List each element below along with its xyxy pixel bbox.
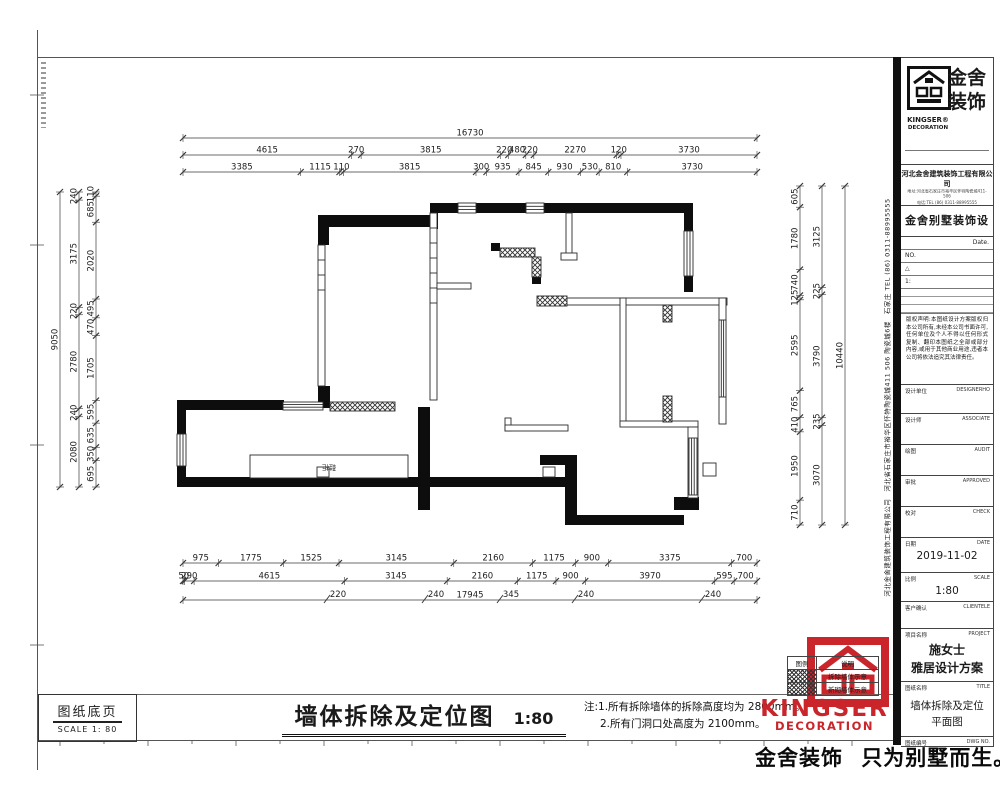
row-label-cn: 绘图 bbox=[905, 447, 916, 455]
dim-label: 3145 bbox=[385, 572, 407, 582]
row-audit: 绘图 AUDIT bbox=[901, 445, 993, 476]
dim-label: 930 bbox=[556, 163, 572, 173]
dim-label: 3730 bbox=[681, 163, 703, 173]
dim-label: 700 bbox=[737, 572, 753, 582]
row-label-cn: 设计师 bbox=[905, 416, 922, 424]
row-label-en: ASSOCIATE bbox=[962, 416, 990, 422]
dim-label: 595 bbox=[716, 572, 732, 582]
brand-cn-line2: 装饰 bbox=[945, 90, 989, 114]
kingser-red-wordmark: KINGSER DECORATION bbox=[756, 698, 893, 733]
dim-label: 220 bbox=[522, 146, 538, 156]
dim-label: 1175 bbox=[543, 554, 565, 564]
corner-title-box: 图纸底页 SCALE 1: 80 bbox=[38, 694, 137, 742]
dim-label: 3970 bbox=[639, 572, 661, 582]
brand-logo-section: 金舍 装饰 KINGSER® DECORATION bbox=[901, 58, 993, 165]
dim-label: 3145 bbox=[386, 554, 408, 564]
legend-symbol-new bbox=[788, 683, 817, 696]
dim-label: 2160 bbox=[482, 554, 504, 564]
corner-title: 图纸底页 bbox=[53, 701, 121, 723]
dim-label: 240 bbox=[70, 188, 80, 204]
dim-label: 1950 bbox=[791, 455, 801, 477]
row-dwgno: 图纸编号 DWG NO. bbox=[901, 737, 993, 761]
row-associate: 设计师 ASSOCIATE bbox=[901, 414, 993, 445]
company-section: 河北金舍建筑装饰工程有限公司 地址:河北省石家庄市裕华区怀特陶瓷城411-506… bbox=[901, 165, 993, 206]
dim-label: 4615 bbox=[256, 146, 278, 156]
legend-symbol-demolish bbox=[788, 670, 817, 683]
dim-label: 225 bbox=[813, 283, 823, 299]
dim-label: 9050 bbox=[51, 329, 61, 351]
dim-label: 120 bbox=[611, 146, 627, 156]
company-name: 河北金舍建筑装饰工程有限公司 bbox=[901, 169, 993, 189]
product-line: 金舍别墅装饰设计 bbox=[901, 206, 993, 237]
titleblock-vertical-address: 河北金舍建筑装饰工程有限公司 河北省石家庄市裕华区怀特陶瓷城411 506 陶瓷… bbox=[882, 58, 893, 738]
dim-label: 700 bbox=[736, 554, 752, 564]
dim-label: 495 bbox=[87, 300, 97, 316]
kingser-red-name: KINGSER bbox=[756, 698, 893, 720]
dim-label: 2270 bbox=[564, 146, 586, 156]
disclaimer-text: 版权声明:本图纸设计方案版权归本公司所有,未经本公司书面许可,任何单位及个人不得… bbox=[901, 314, 993, 385]
dim-label: 220 bbox=[330, 590, 346, 600]
fixture-layer bbox=[250, 455, 716, 478]
dim-label: 16730 bbox=[456, 129, 483, 139]
dim-label: 935 bbox=[495, 163, 511, 173]
dim-label: 350 bbox=[87, 446, 97, 462]
dim-label: 810 bbox=[605, 163, 621, 173]
cabinet-label: 鞋柜 bbox=[322, 463, 336, 472]
dim-label: 765 bbox=[791, 396, 801, 412]
dim-label: 3730 bbox=[678, 146, 700, 156]
dim-label: 3070 bbox=[813, 464, 823, 486]
dim-label: 270 bbox=[348, 146, 364, 156]
title-block-panel: 金舍 装饰 KINGSER® DECORATION 河北金舍建筑装饰工程有限公司… bbox=[901, 57, 994, 747]
row-label-cn: 比例 bbox=[905, 575, 916, 583]
dim-label: 3815 bbox=[399, 163, 421, 173]
dim-label: 900 bbox=[584, 554, 600, 564]
dim-label: 240 bbox=[70, 405, 80, 421]
dim-label: 3125 bbox=[813, 226, 823, 248]
slogan-brand: 金舍装饰 bbox=[755, 746, 843, 770]
dim-label: 1175 bbox=[526, 572, 548, 582]
brand-cn-line1: 金舍 bbox=[945, 66, 989, 90]
row-label-cn: 校对 bbox=[905, 509, 916, 517]
row-label-cn: 审批 bbox=[905, 478, 916, 486]
sheet-title-line1: 墙体拆除及定位 bbox=[901, 698, 993, 713]
brand-name-en: KINGSER® DECORATION bbox=[907, 116, 949, 132]
dim-label: 3815 bbox=[420, 146, 442, 156]
dim-label: 740 bbox=[791, 274, 801, 290]
sheet-title-line2: 平面图 bbox=[901, 714, 993, 729]
dim-label: 530 bbox=[582, 163, 598, 173]
dim-label: 1705 bbox=[87, 357, 97, 379]
dim-label: 410 bbox=[791, 417, 801, 433]
drawing-scale: 1:80 bbox=[514, 709, 554, 728]
frame-ruler-ticks bbox=[30, 95, 852, 746]
legend-label-demolish: 拆除墙体示意 bbox=[817, 670, 879, 683]
corner-scale: SCALE 1: 80 bbox=[39, 725, 136, 734]
row-label-cn: 图纸编号 bbox=[905, 739, 927, 747]
dim-label: 3175 bbox=[70, 243, 80, 265]
company-address: 地址:河北省石家庄市裕华区怀特陶瓷城411-506 bbox=[906, 190, 989, 201]
date-small-label: Date. bbox=[901, 237, 993, 250]
dim-label: 345 bbox=[503, 590, 519, 600]
row-label-en: DESIGNERHO bbox=[956, 387, 990, 393]
logo-divider bbox=[905, 150, 989, 151]
row-label-en: APPROVED bbox=[963, 478, 990, 484]
dim-label: 4615 bbox=[259, 572, 281, 582]
brand-name-cn: 金舍 装饰 bbox=[945, 66, 989, 114]
kingser-red-sub: DECORATION bbox=[756, 720, 893, 733]
row-label-en: TITLE bbox=[976, 684, 990, 690]
row-label-en: PROJECT bbox=[968, 631, 990, 637]
dim-label: 635 bbox=[87, 427, 97, 443]
scale-value: 1:80 bbox=[901, 585, 993, 597]
no-label: NO. bbox=[901, 250, 993, 263]
row-label-en: DATE bbox=[977, 540, 990, 546]
dim-label: 10440 bbox=[836, 342, 846, 369]
dim-label: 290 bbox=[181, 572, 197, 582]
dim-label: 2780 bbox=[70, 351, 80, 373]
dimensions-layer: 1673046152703815220480220227012037303385… bbox=[51, 129, 850, 605]
dim-label: 685 bbox=[87, 201, 97, 217]
one-label: 1: bbox=[901, 276, 993, 289]
dim-label: 240 bbox=[428, 590, 444, 600]
blank-ruled-lines bbox=[901, 289, 993, 314]
dim-label: 605 bbox=[791, 188, 801, 204]
dim-label: 240 bbox=[705, 590, 721, 600]
dim-label: 17945 bbox=[456, 591, 483, 601]
dim-label: 2020 bbox=[87, 250, 97, 272]
row-project: 项目名称 PROJECT 施女士 雅居设计方案 bbox=[901, 629, 993, 682]
legend-label-new: 新砌墙体示意 bbox=[817, 683, 879, 696]
drawing-title-block: 墙体拆除及定位图 1:80 bbox=[282, 697, 566, 737]
dim-label: 975 bbox=[193, 554, 209, 564]
project-name-line2: 雅居设计方案 bbox=[901, 659, 993, 676]
legend-header-symbol: 图例 bbox=[788, 657, 817, 670]
dim-label: 595 bbox=[87, 404, 97, 420]
row-date: 日期 DATE 2019-11-02 bbox=[901, 538, 993, 573]
dim-label: 110 bbox=[333, 163, 349, 173]
dim-label: 2160 bbox=[472, 572, 494, 582]
row-label-en: AUDIT bbox=[975, 447, 990, 453]
row-label-cn: 设计单位 bbox=[905, 387, 927, 395]
dim-label: 900 bbox=[562, 572, 578, 582]
drawing-title: 墙体拆除及定位图 bbox=[295, 704, 495, 730]
window-symbols-layer bbox=[177, 203, 726, 495]
dim-label: 2080 bbox=[70, 441, 80, 463]
dim-label: 3375 bbox=[659, 554, 681, 564]
dim-label: 1780 bbox=[791, 228, 801, 250]
dim-label: 3790 bbox=[813, 345, 823, 367]
legend-table: 图例 说明 拆除墙体示意 新砌墙体示意 bbox=[787, 656, 879, 696]
dim-label: 1115 bbox=[309, 163, 331, 173]
dim-label: 710 bbox=[791, 504, 801, 520]
dim-label: 695 bbox=[87, 466, 97, 482]
dim-label: 240 bbox=[578, 590, 594, 600]
dim-label: 220 bbox=[70, 303, 80, 319]
date-value: 2019-11-02 bbox=[901, 550, 993, 562]
row-check: 校对 CHECK bbox=[901, 507, 993, 538]
plan-labels-layer: 鞋柜 bbox=[322, 463, 336, 472]
row-approved: 审批 APPROVED bbox=[901, 476, 993, 507]
dim-label: 845 bbox=[526, 163, 542, 173]
dim-label: 1525 bbox=[300, 554, 322, 564]
dim-label: 110 bbox=[87, 186, 97, 202]
project-name-line1: 施女士 bbox=[901, 641, 993, 658]
row-scale: 比例 SCALE 1:80 bbox=[901, 573, 993, 602]
row-label-en: DWG NO. bbox=[967, 739, 990, 745]
dim-label: 300 bbox=[473, 163, 489, 173]
row-label-cn: 项目名称 bbox=[905, 631, 927, 639]
dim-label: 2595 bbox=[791, 334, 801, 356]
dim-label: 125 bbox=[791, 290, 801, 306]
row-designer: 设计单位 DESIGNERHO bbox=[901, 385, 993, 414]
drawing-sheet: 1673046152703815220480220227012037303385… bbox=[0, 0, 1000, 800]
row-label-cn: 图纸名称 bbox=[905, 684, 927, 692]
row-label-cn: 客户确认 bbox=[905, 604, 927, 612]
dim-label: 235 bbox=[813, 413, 823, 429]
row-clientele: 客户确认 CLIENTELE bbox=[901, 602, 993, 629]
row-label-en: CLIENTELE bbox=[963, 604, 990, 610]
brand-en-line1: KINGSER® bbox=[907, 116, 949, 124]
brand-en-line2: DECORATION bbox=[907, 124, 949, 132]
row-label-cn: 日期 bbox=[905, 540, 916, 548]
dim-label: 470 bbox=[87, 319, 97, 335]
triangle-mark: △ bbox=[901, 263, 993, 276]
dim-label: 3385 bbox=[231, 163, 253, 173]
dim-label: 1775 bbox=[240, 554, 262, 564]
legend-header-label: 说明 bbox=[817, 657, 879, 670]
row-label-en: CHECK bbox=[973, 509, 990, 515]
row-title: 图纸名称 TITLE 墙体拆除及定位 平面图 bbox=[901, 682, 993, 737]
row-label-en: SCALE bbox=[974, 575, 990, 581]
